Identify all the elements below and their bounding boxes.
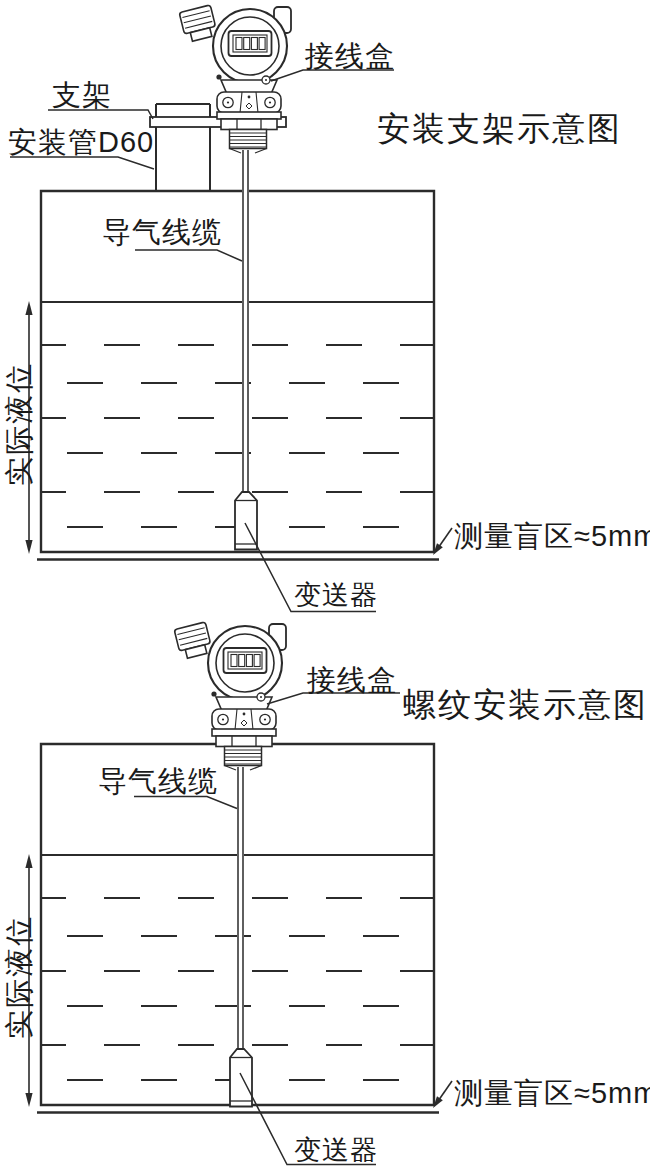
- diagram-title-bottom: 螺纹安装示意图: [403, 688, 648, 723]
- leader-lines-bottom: [134, 693, 400, 1165]
- label-air-cable-top: 导气线缆: [102, 217, 222, 247]
- label-blind-zone-bottom: 测量盲区≈5mm: [454, 1078, 650, 1108]
- diagram-title-top: 安装支架示意图: [377, 112, 622, 147]
- cable-drawing: [237, 767, 244, 1050]
- diagram-bottom-art: [25, 622, 452, 1165]
- label-mounting-pipe: 安装管D60: [8, 127, 154, 157]
- label-junction-box-bottom: 接线盒: [307, 665, 397, 695]
- label-air-cable-bottom: 导气线缆: [98, 766, 218, 796]
- label-bracket: 支架: [52, 80, 112, 110]
- label-actual-level-top: 实际液位: [4, 344, 34, 504]
- label-blind-zone-top: 测量盲区≈5mm: [454, 521, 650, 551]
- label-junction-box-top: 接线盒: [305, 41, 395, 71]
- label-transmitter-top: 变送器: [294, 581, 378, 609]
- label-transmitter-bottom: 变送器: [294, 1136, 378, 1164]
- label-actual-level-bottom: 实际液位: [4, 897, 34, 1057]
- cable-drawing: [242, 150, 249, 494]
- installation-diagram-page: 安装支架示意图 支架 安装管D60 接线盒 导气线缆 实际液位 测量盲区≈5mm…: [0, 0, 650, 1171]
